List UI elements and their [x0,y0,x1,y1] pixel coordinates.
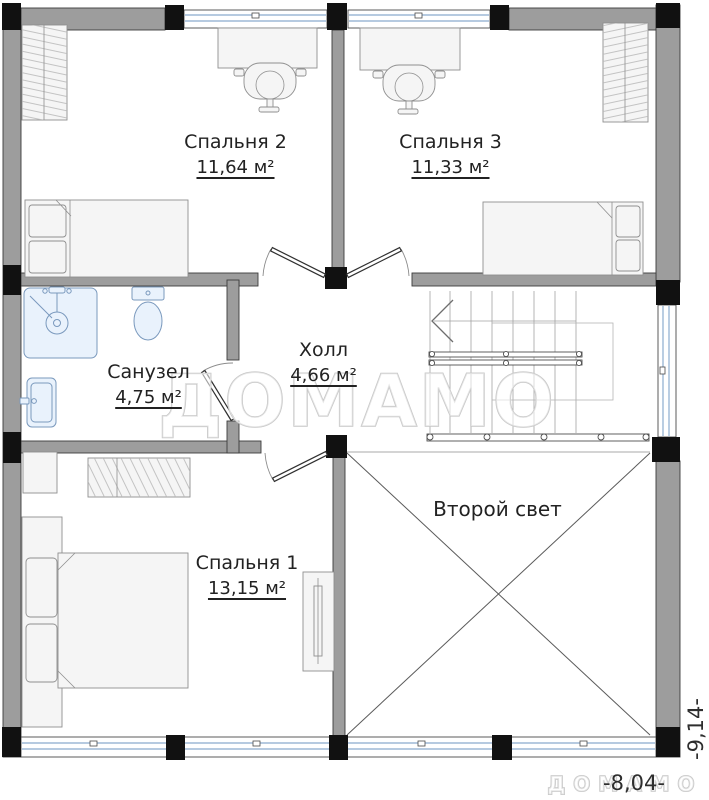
room-area: 13,15 м² [182,576,312,601]
room-name: Спальня 3 [383,130,518,155]
sink-symbol [20,378,56,427]
window-top-left [184,10,327,28]
chair-symbol-bedroom3 [373,65,445,114]
cabinet-symbol-bedroom1 [23,452,57,493]
wardrobe-symbol-bedroom3 [603,23,648,122]
door-symbol-bedroom3 [347,249,409,276]
room-area: 4,66 м² [266,363,381,388]
floor-plan: ДОМАМО ДОМАМО -8,04- -9,14- Спальня 2 11… [0,0,709,800]
dimension-height-label: -9,14- [684,698,708,760]
room-area: 4,75 м² [96,385,201,410]
room-label-bathroom: Санузел 4,75 м² [96,360,201,410]
toilet-symbol [132,287,164,340]
window-right [658,305,676,437]
door-symbol-bedroom1 [265,453,327,480]
room-label-hall: Холл 4,66 м² [266,338,381,388]
room-area: 11,33 м² [383,155,518,180]
desk-symbol-bedroom3 [360,28,460,70]
room-label-second-light: Второй свет [415,497,580,521]
dimension-width-label: -8,04- [603,771,665,795]
door-symbol-bedroom2 [263,249,325,276]
room-label-bedroom1: Спальня 1 13,15 м² [182,551,312,601]
room-label-bedroom3: Спальня 3 11,33 м² [383,130,518,180]
chair-symbol-bedroom2 [234,63,306,112]
room-name: Спальня 1 [182,551,312,576]
desk-symbol-bedroom2 [218,28,317,68]
wardrobe-symbol-bedroom2 [22,25,67,120]
wardrobe-symbol-bedroom1 [88,458,190,497]
bed-symbol-bedroom1 [22,517,188,727]
shower-symbol [24,287,97,358]
room-name: Второй свет [415,497,580,521]
window-top-right [348,10,490,28]
room-name: Спальня 2 [168,130,303,155]
room-label-bedroom2: Спальня 2 11,64 м² [168,130,303,180]
void-cross [347,452,650,735]
room-name: Холл [266,338,381,363]
bed-symbol-bedroom3 [483,202,643,275]
room-name: Санузел [96,360,201,385]
bed-symbol-bedroom2 [25,200,188,277]
room-area: 11,64 м² [168,155,303,180]
